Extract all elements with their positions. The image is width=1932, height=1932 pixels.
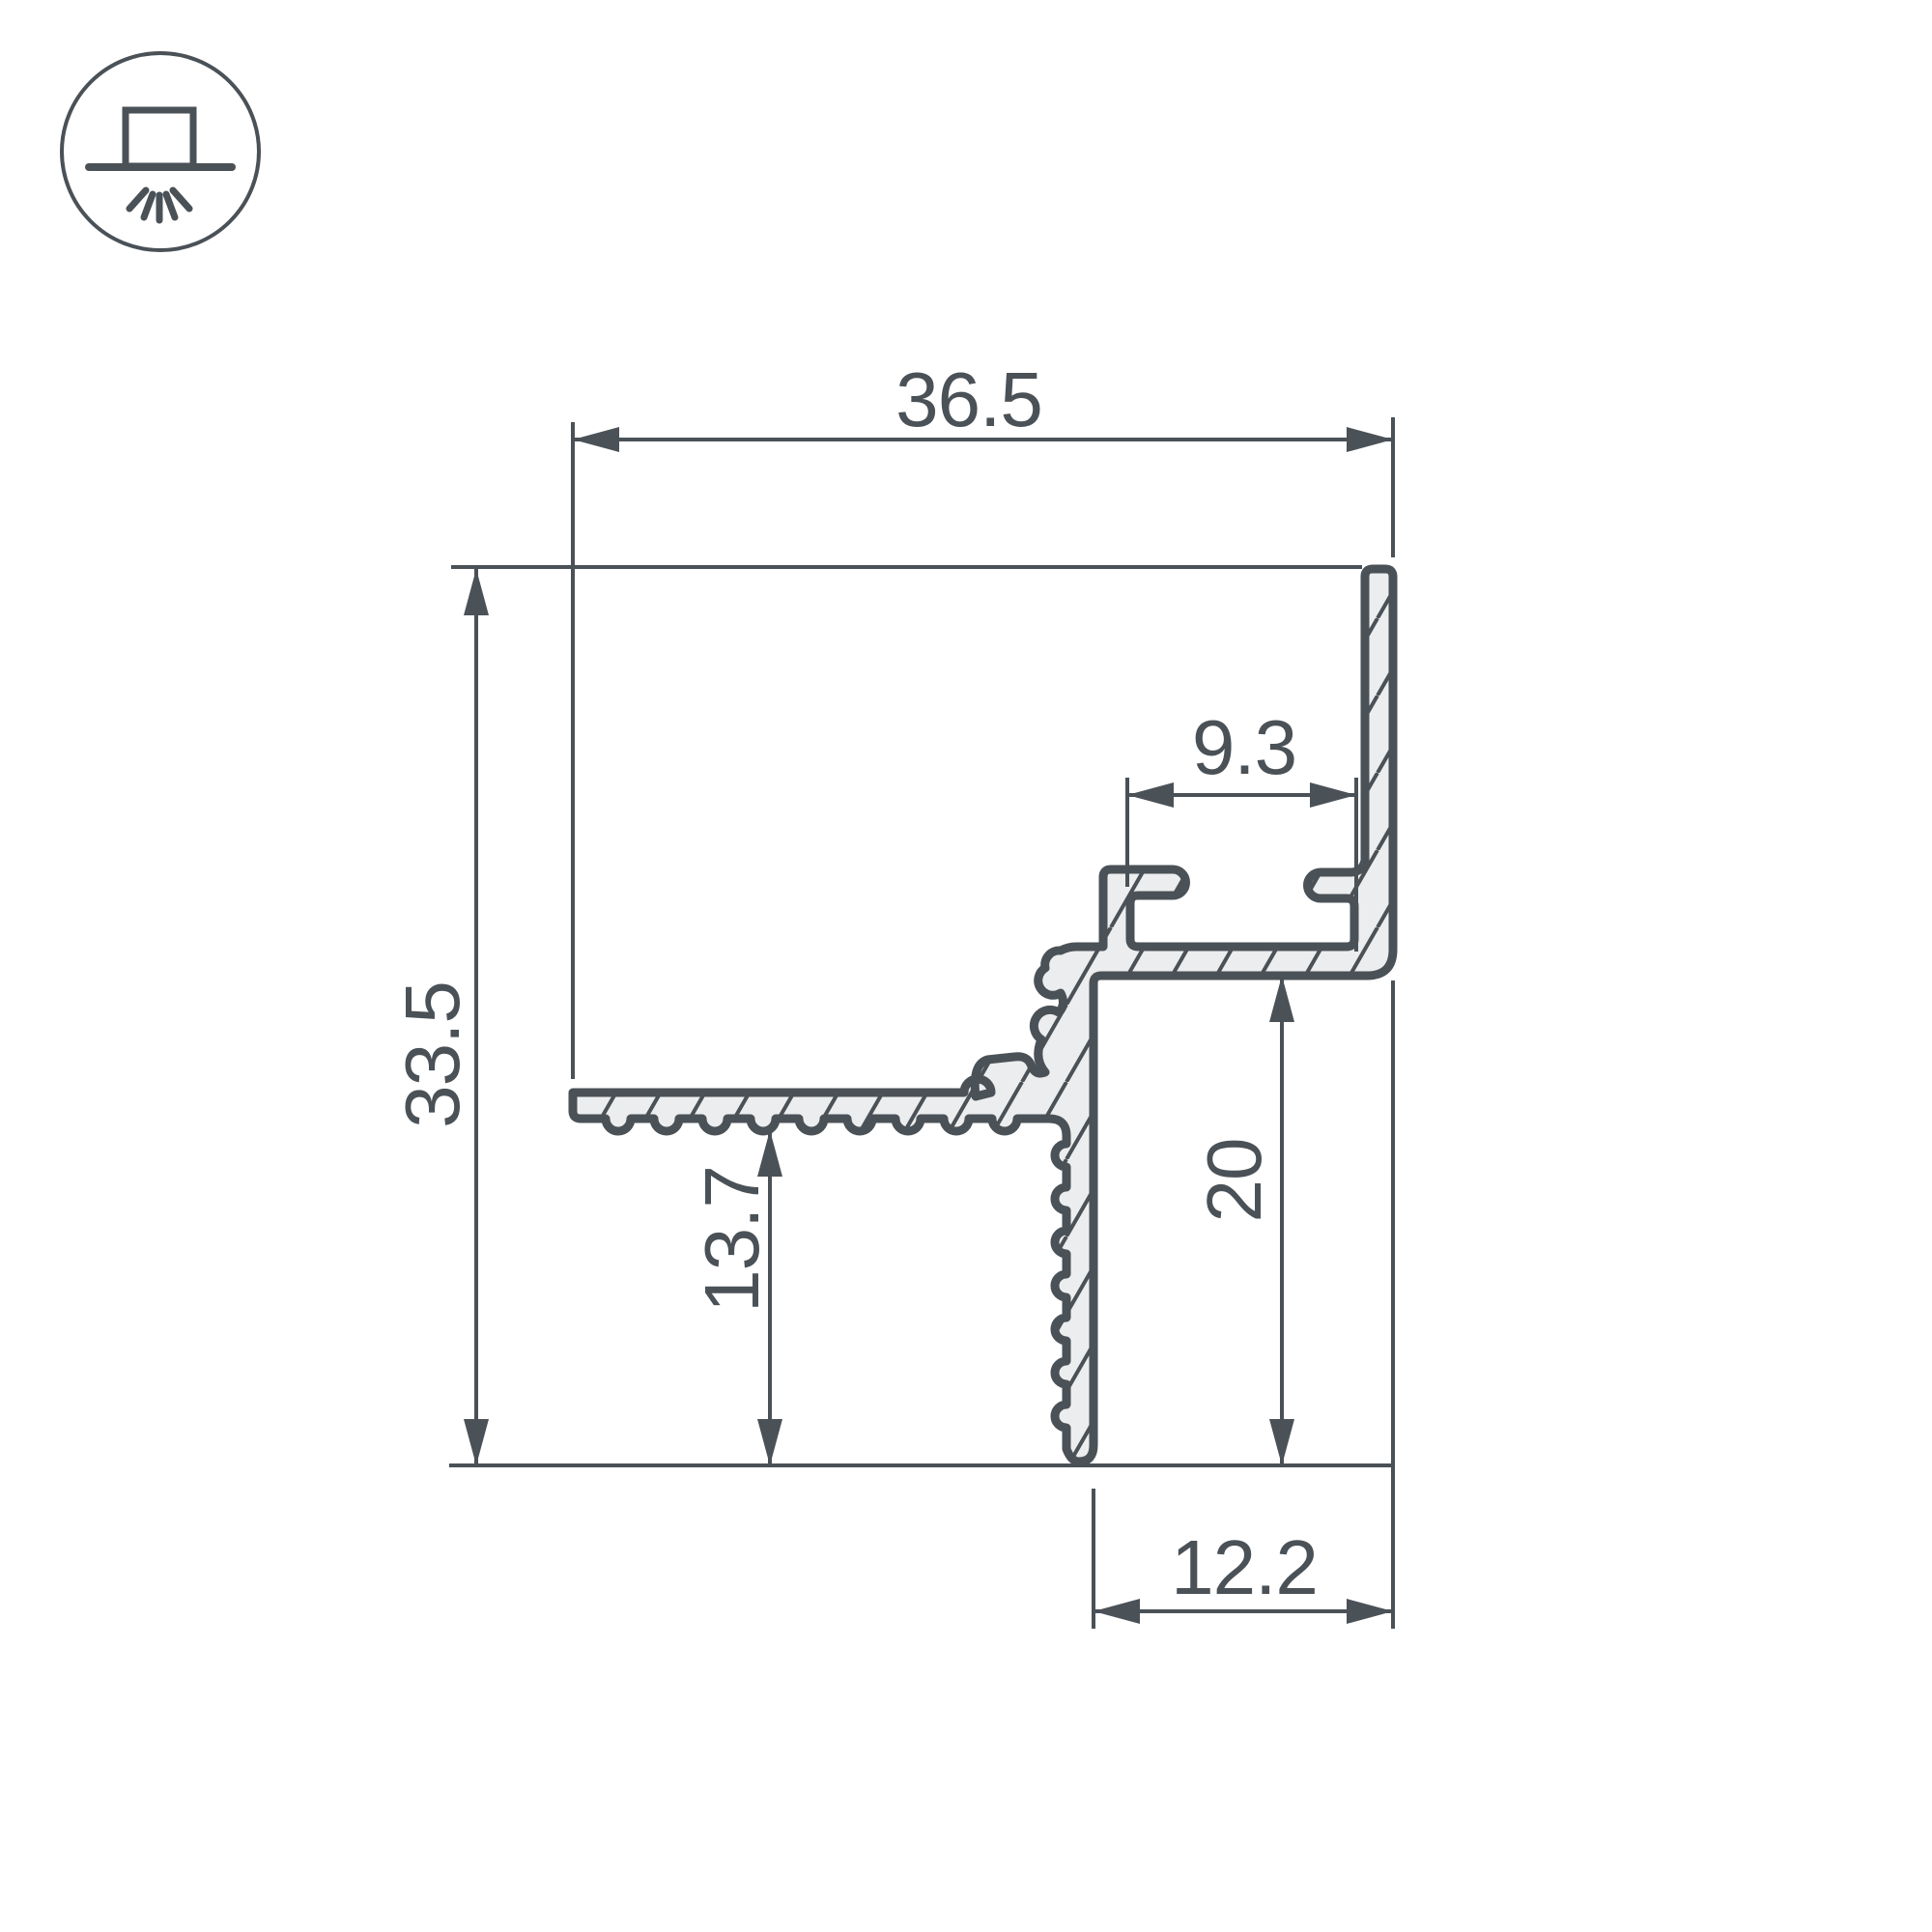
dimension-inner-height: 20 bbox=[1191, 976, 1294, 1465]
dimension-label: 13.7 bbox=[689, 1166, 775, 1313]
profile-technical-drawing: 36.5 33.5 9.3 13.7 20 12.2 bbox=[0, 0, 1932, 1932]
arrowhead bbox=[1094, 1599, 1140, 1624]
dimension-bottom-width: 12.2 bbox=[1094, 980, 1393, 1629]
arrowhead bbox=[1269, 1419, 1294, 1465]
arrowhead bbox=[1347, 1599, 1393, 1624]
arrowhead bbox=[464, 569, 489, 615]
arrowhead bbox=[573, 427, 619, 452]
arrowhead bbox=[757, 1419, 782, 1465]
recessed-light-icon bbox=[62, 53, 259, 250]
arrowhead bbox=[1269, 976, 1294, 1022]
arrowhead bbox=[1127, 782, 1174, 808]
icon-light-rays bbox=[129, 190, 189, 220]
dimension-flange-offset: 13.7 bbox=[689, 1130, 782, 1465]
dimension-left-height: 33.5 bbox=[389, 567, 1362, 1465]
dimension-label: 12.2 bbox=[1171, 1524, 1318, 1610]
icon-fixture-box bbox=[126, 110, 193, 166]
dimension-label: 9.3 bbox=[1192, 704, 1296, 790]
arrowhead bbox=[464, 1419, 489, 1465]
arrowhead bbox=[1347, 427, 1393, 452]
dimension-label: 20 bbox=[1191, 1139, 1277, 1223]
drawing-canvas: 36.5 33.5 9.3 13.7 20 12.2 bbox=[0, 0, 1932, 1932]
dimension-slot-width: 9.3 bbox=[1127, 704, 1356, 952]
dimension-label: 36.5 bbox=[895, 356, 1042, 442]
arrowhead bbox=[1310, 782, 1356, 808]
dimension-label: 33.5 bbox=[389, 981, 475, 1128]
profile-cross-section bbox=[573, 569, 1393, 1462]
